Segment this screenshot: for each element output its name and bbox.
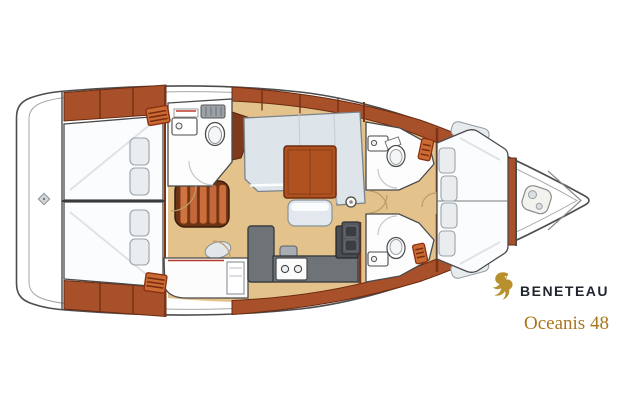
companionway-steps (175, 181, 229, 227)
toilet-bowl (390, 240, 402, 255)
locker-ladder-label (146, 105, 171, 126)
pillow (130, 138, 149, 165)
mast-center (349, 200, 353, 204)
pillow (439, 231, 455, 256)
pillow (441, 203, 457, 228)
locker-door (345, 240, 357, 251)
pillow (130, 210, 149, 236)
sink-basin (281, 265, 288, 272)
pillow (130, 168, 149, 195)
brand-wordmark: BENETEAU (520, 283, 609, 299)
toilet-bowl (390, 150, 402, 165)
seahorse-logo-icon (488, 271, 515, 310)
step-tread (219, 185, 227, 225)
instrument-panel (227, 262, 244, 294)
yacht-floor-plan-page: BENETEAU Oceanis 48 (0, 0, 630, 420)
step-tread (180, 185, 188, 225)
step-tread (199, 185, 207, 225)
sink-basin (371, 140, 376, 145)
pillow (130, 239, 149, 265)
galley-sink-unit (276, 258, 307, 280)
aft-cabins (62, 116, 165, 287)
locker-ladder-label (144, 273, 167, 294)
locker-door (345, 226, 357, 237)
sink-basin (371, 256, 376, 261)
toilet-bowl (209, 127, 222, 144)
galley-counter-left (248, 226, 274, 282)
brand-block: BENETEAU Oceanis 48 (488, 271, 628, 335)
boat-plan-drawing (0, 0, 630, 420)
forepeak-trim-strip (508, 158, 516, 245)
pillow (441, 176, 457, 201)
sink-basin (294, 265, 301, 272)
bench-highlight (291, 203, 329, 211)
model-name: Oceanis 48 (524, 313, 628, 335)
pillow (439, 148, 455, 173)
towel-shelf (174, 109, 198, 117)
step-tread (209, 185, 217, 225)
sink-basin (176, 123, 182, 129)
